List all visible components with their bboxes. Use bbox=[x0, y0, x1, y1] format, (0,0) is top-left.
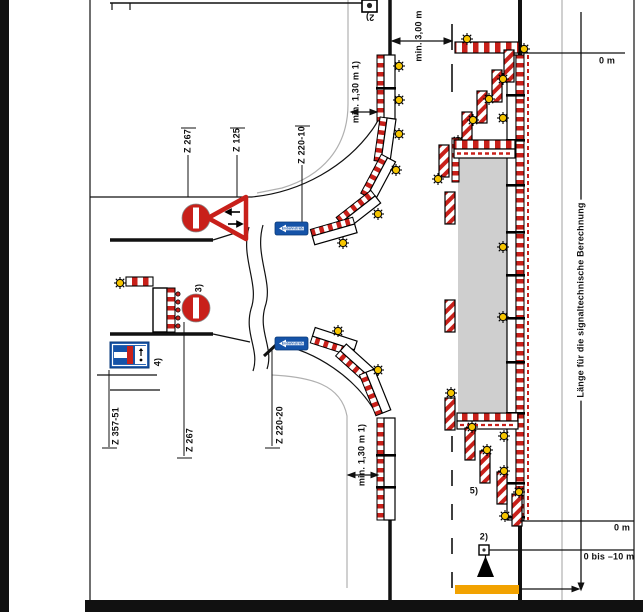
warning-lamp-icon bbox=[337, 237, 349, 249]
signal-sign-top bbox=[362, 0, 377, 12]
footnote-2-top: 2) bbox=[366, 13, 374, 22]
oncoming-traffic-sign bbox=[208, 197, 246, 239]
dead-end-sign bbox=[110, 342, 149, 368]
dim-walkway-bottom: min. 1,30 m 1) bbox=[358, 424, 367, 486]
sign-ref-z357-51: Z 357-51 bbox=[112, 407, 121, 445]
sign-ref-z220-20: Z 220-20 bbox=[276, 406, 285, 444]
warning-lamp-icon bbox=[372, 208, 384, 220]
barrier-red-lamps bbox=[176, 292, 180, 328]
one-way-sign-text-top: Einbahnstraße bbox=[282, 227, 304, 230]
dim-walkway-top: min. 1,30 m 1) bbox=[352, 61, 361, 123]
footnote-5: 5) bbox=[470, 487, 478, 496]
length-calculation-note: Länge für die signaltechnische Berechnun… bbox=[576, 199, 587, 400]
stop-line-bar bbox=[455, 585, 519, 594]
warning-lamp-icon bbox=[445, 387, 457, 399]
dim-lane-width: min. 3,00 m bbox=[415, 10, 424, 61]
station-0m-bottom: 0 m bbox=[614, 524, 630, 533]
one-way-sign-text-bottom: Einbahnstraße bbox=[282, 342, 304, 345]
work-area-west-beacons bbox=[445, 192, 457, 430]
side-street-barrier bbox=[114, 277, 180, 332]
footnote-2-bottom: 2) bbox=[480, 533, 488, 542]
work-area bbox=[458, 158, 510, 412]
traffic-signage-plan: Z 267 Z 125 Z 220-10 Z 357-51 Z 267 Z 22… bbox=[0, 0, 643, 612]
station-0m-top: 0 m bbox=[599, 57, 615, 66]
barrier-chain-west-bottom bbox=[310, 325, 396, 520]
station-signal-range: 0 bis –10 m bbox=[584, 553, 635, 562]
drawing-border bbox=[0, 0, 643, 612]
sign-ref-z125: Z 125 bbox=[233, 128, 242, 152]
sign-ref-z267-top: Z 267 bbox=[184, 129, 193, 153]
sign-ref-z267-bottom: Z 267 bbox=[186, 428, 195, 452]
footnote-3: 3) bbox=[195, 284, 204, 292]
plan-drawing bbox=[0, 0, 643, 612]
warning-lamp-icon bbox=[114, 277, 126, 289]
sign-ref-z220-10: Z 220-10 bbox=[298, 126, 307, 164]
footnote-4: 4) bbox=[154, 358, 163, 366]
no-entry-sign bbox=[182, 294, 210, 322]
